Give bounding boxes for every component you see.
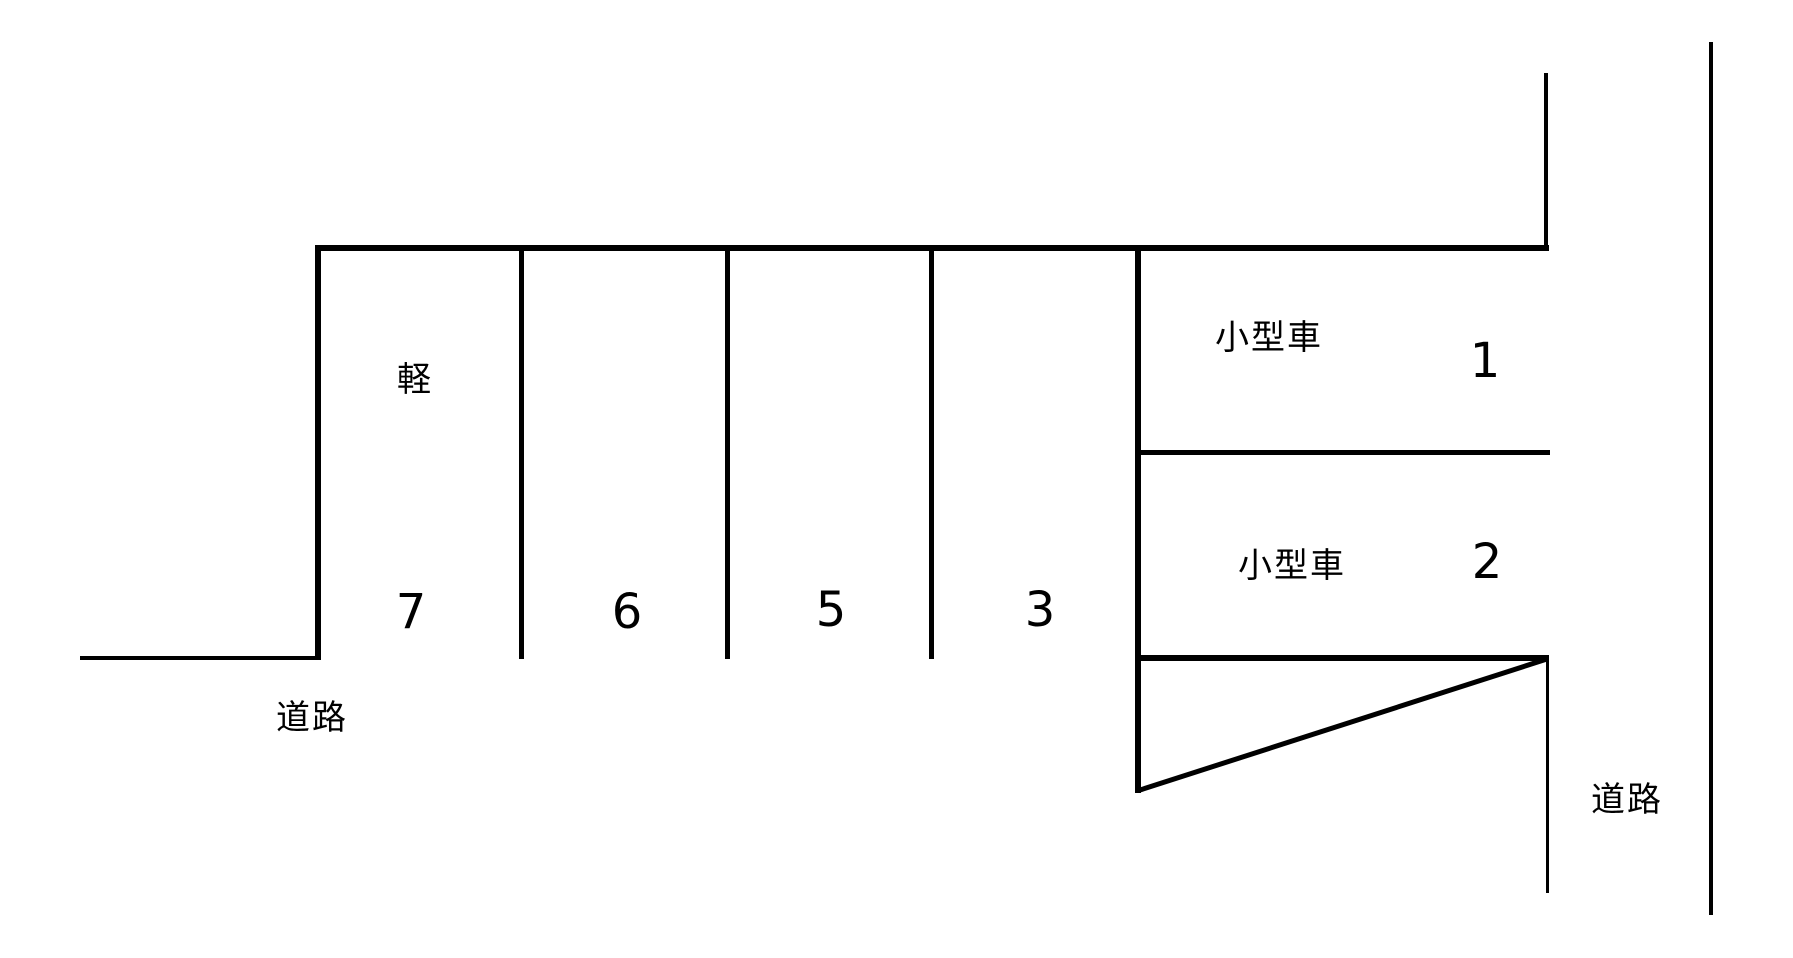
space-6-number: 6 (612, 588, 643, 636)
divider-space3-right-section (1135, 251, 1141, 793)
space-2-type-label: 小型車 (1238, 549, 1346, 583)
diagonal-layer (0, 0, 1793, 958)
divider-space1-space2 (1141, 450, 1550, 455)
space-1-type-label: 小型車 (1215, 321, 1323, 355)
space-7-type-label: 軽 (397, 363, 433, 397)
right-lower-wall-line (1546, 661, 1549, 893)
road-label-right: 道路 (1591, 783, 1663, 817)
space-3-number: 3 (1025, 586, 1056, 634)
road-label-left: 道路 (276, 701, 348, 735)
space-7-number: 7 (396, 588, 427, 636)
space-5-number: 5 (816, 586, 847, 634)
top-right-wall-line (1544, 73, 1548, 245)
triangle-hypotenuse-line (1140, 659, 1547, 790)
left-boundary-line (315, 245, 321, 660)
divider-space5-space3 (929, 251, 934, 659)
space2-bottom-line (1141, 655, 1549, 661)
space-1-number: 1 (1470, 337, 1501, 385)
space-2-number: 2 (1472, 538, 1503, 586)
parking-lot-diagram: 軽 7 6 5 3 小型車 1 小型車 2 道路 道路 (0, 0, 1793, 958)
road-right-boundary-line (1709, 42, 1713, 915)
divider-space6-space5 (725, 251, 730, 659)
divider-space7-space6 (519, 251, 524, 659)
entrance-line-left (80, 656, 315, 660)
